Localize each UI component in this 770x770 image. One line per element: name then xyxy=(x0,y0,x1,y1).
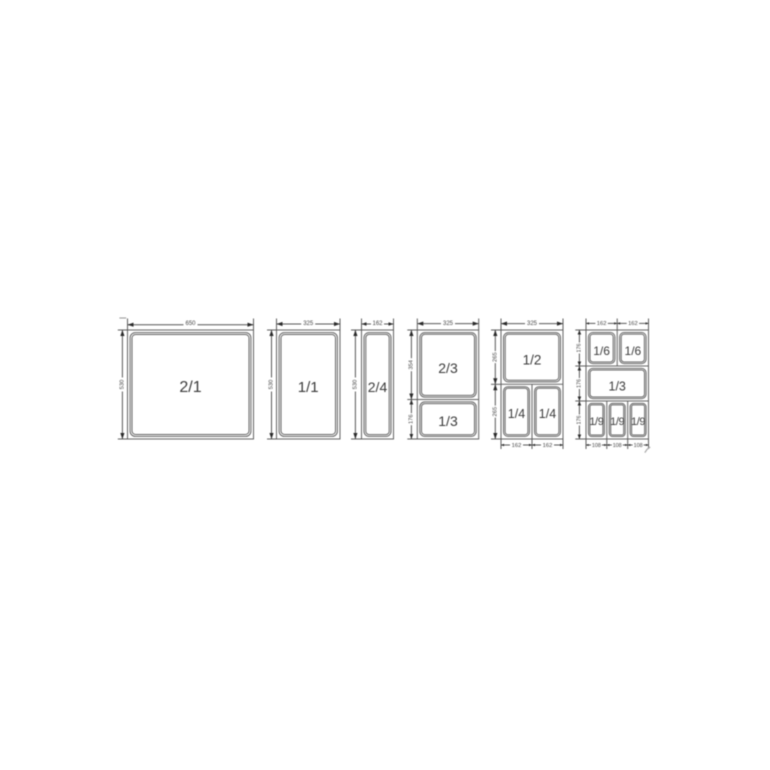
svg-text:265: 265 xyxy=(493,352,499,362)
svg-text:1/1: 1/1 xyxy=(298,379,319,396)
svg-text:108: 108 xyxy=(592,443,601,449)
svg-text:325: 325 xyxy=(443,321,454,327)
svg-text:325: 325 xyxy=(303,321,314,327)
svg-text:2/1: 2/1 xyxy=(179,379,201,396)
svg-text:1/9: 1/9 xyxy=(589,416,603,428)
svg-text:1/4: 1/4 xyxy=(539,407,556,421)
svg-text:1/2: 1/2 xyxy=(523,353,542,368)
svg-text:176: 176 xyxy=(577,379,583,388)
svg-text:530: 530 xyxy=(120,380,126,390)
svg-text:1/6: 1/6 xyxy=(593,344,610,358)
svg-text:265: 265 xyxy=(493,407,499,417)
svg-text:176: 176 xyxy=(577,344,583,353)
svg-text:108: 108 xyxy=(613,443,622,449)
svg-text:530: 530 xyxy=(353,380,359,390)
svg-text:650: 650 xyxy=(185,321,196,327)
svg-text:162: 162 xyxy=(372,321,383,327)
svg-text:325: 325 xyxy=(527,321,538,327)
svg-text:162: 162 xyxy=(597,321,607,327)
svg-text:354: 354 xyxy=(409,359,415,369)
svg-text:1/3: 1/3 xyxy=(438,413,458,429)
svg-text:1/4: 1/4 xyxy=(508,407,525,421)
svg-text:2/3: 2/3 xyxy=(438,360,458,376)
svg-text:162: 162 xyxy=(512,443,522,449)
svg-text:176: 176 xyxy=(577,416,583,425)
svg-text:1/6: 1/6 xyxy=(625,344,642,358)
svg-text:1/9: 1/9 xyxy=(631,416,645,428)
svg-text:1/3: 1/3 xyxy=(609,380,626,394)
svg-text:176: 176 xyxy=(409,414,415,424)
svg-text:1/9: 1/9 xyxy=(610,416,624,428)
svg-text:2/4: 2/4 xyxy=(368,379,388,395)
svg-text:530: 530 xyxy=(269,380,275,390)
svg-text:162: 162 xyxy=(543,443,553,449)
svg-text:108: 108 xyxy=(634,443,643,449)
svg-text:162: 162 xyxy=(628,321,638,327)
